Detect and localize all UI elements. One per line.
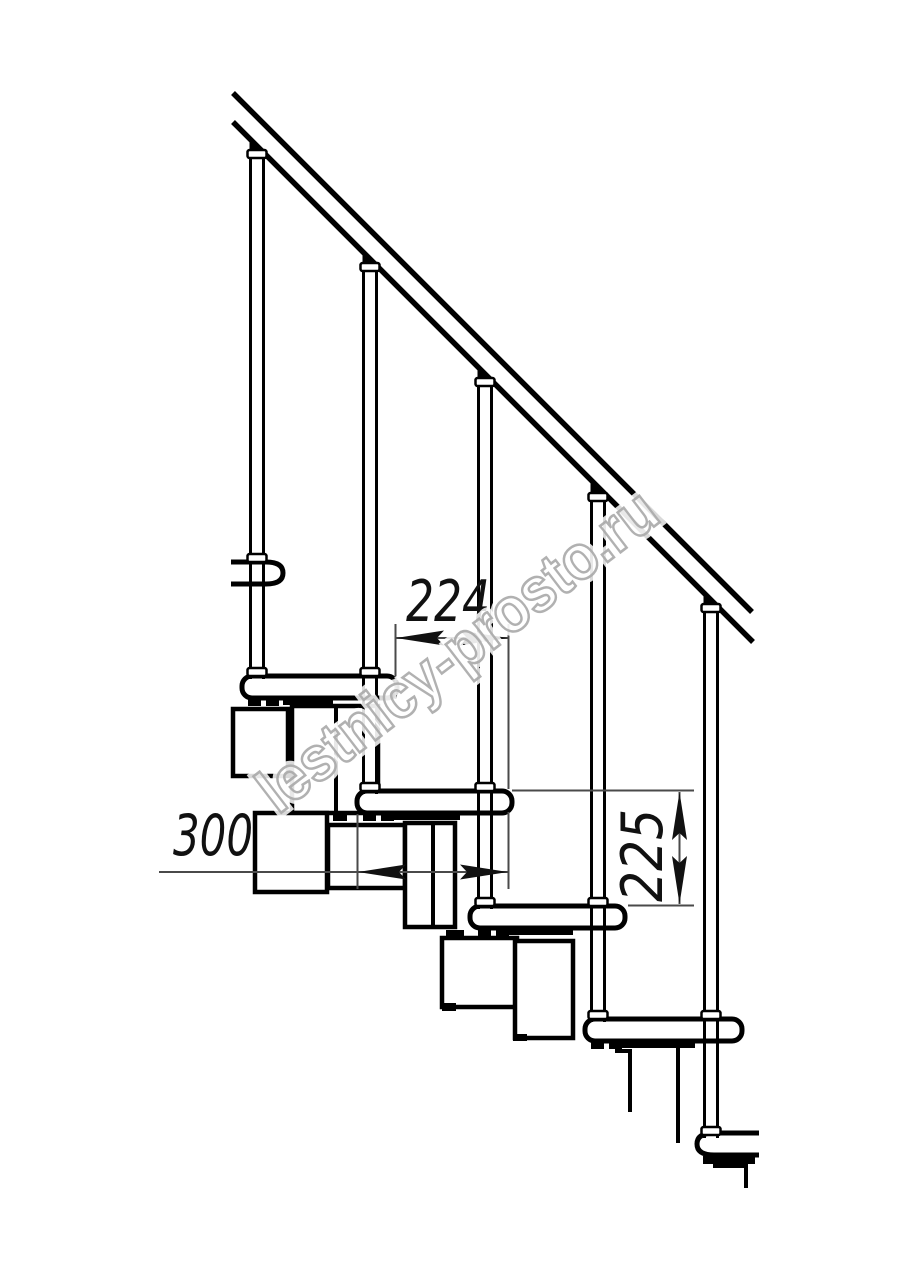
baluster-collar: [476, 783, 495, 791]
tread-foot: [266, 697, 279, 706]
baluster-collar: [702, 604, 721, 612]
staircase-drawing: 224 300 225 lestnicy-: [0, 0, 914, 1280]
tread-mount-bar: [283, 696, 333, 705]
tread-5: [697, 1133, 759, 1155]
module-cut-line: [713, 1166, 746, 1188]
tread-mount-bar: [620, 1040, 695, 1048]
tread-foot: [478, 927, 491, 936]
baluster-collar: [589, 1011, 608, 1019]
module-connector: [446, 930, 464, 938]
watermark-text: lestnicy-prosto.ru: [244, 475, 671, 826]
module-connector: [513, 1034, 527, 1041]
tread-foot: [591, 1040, 604, 1049]
baluster-collar: [361, 783, 380, 791]
module-box: [328, 825, 405, 888]
baluster-collar: [248, 150, 267, 158]
tread-3: [470, 906, 625, 928]
module-column: [515, 941, 573, 1038]
module-column: [405, 823, 455, 927]
module-box: [442, 938, 517, 1007]
baluster-1: [248, 140, 267, 679]
tread-2: [357, 791, 512, 813]
baluster-collar: [476, 898, 495, 906]
tread-0: [231, 562, 283, 584]
module-cut-line: [615, 1051, 630, 1112]
baluster-5: [702, 594, 721, 1138]
watermark: lestnicy-prosto.ru lestnicy-prosto.ru: [244, 475, 671, 826]
module-connector: [442, 1003, 456, 1011]
dimension-label-300: 300: [173, 803, 253, 869]
baluster-collar: [702, 1127, 721, 1135]
baluster-collar: [248, 668, 267, 676]
tread-mount-bar: [703, 1156, 755, 1164]
baluster-collar: [702, 1011, 721, 1019]
baluster-collar: [361, 263, 380, 271]
tread-foot: [363, 812, 376, 821]
baluster-collar: [476, 378, 495, 386]
tread-mount-bar: [505, 927, 573, 935]
page: 224 300 225 lestnicy-: [0, 0, 914, 1280]
dimension-label-225: 225: [610, 809, 676, 902]
tread-mount-bar: [392, 812, 460, 820]
baluster-collar: [248, 554, 267, 562]
tread-foot: [248, 697, 261, 706]
module-connector: [333, 813, 347, 821]
arrow-right: [460, 865, 508, 880]
module-box: [255, 813, 327, 892]
baluster-collar: [589, 898, 608, 906]
